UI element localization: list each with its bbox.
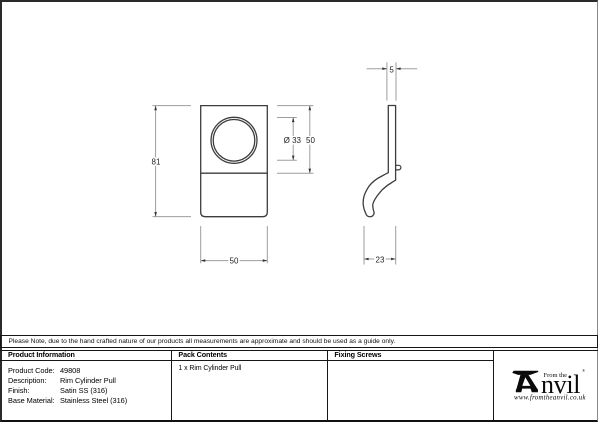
svg-text:www.fromtheanvil.co.uk: www.fromtheanvil.co.uk xyxy=(514,394,586,401)
svg-text:®: ® xyxy=(582,367,585,372)
